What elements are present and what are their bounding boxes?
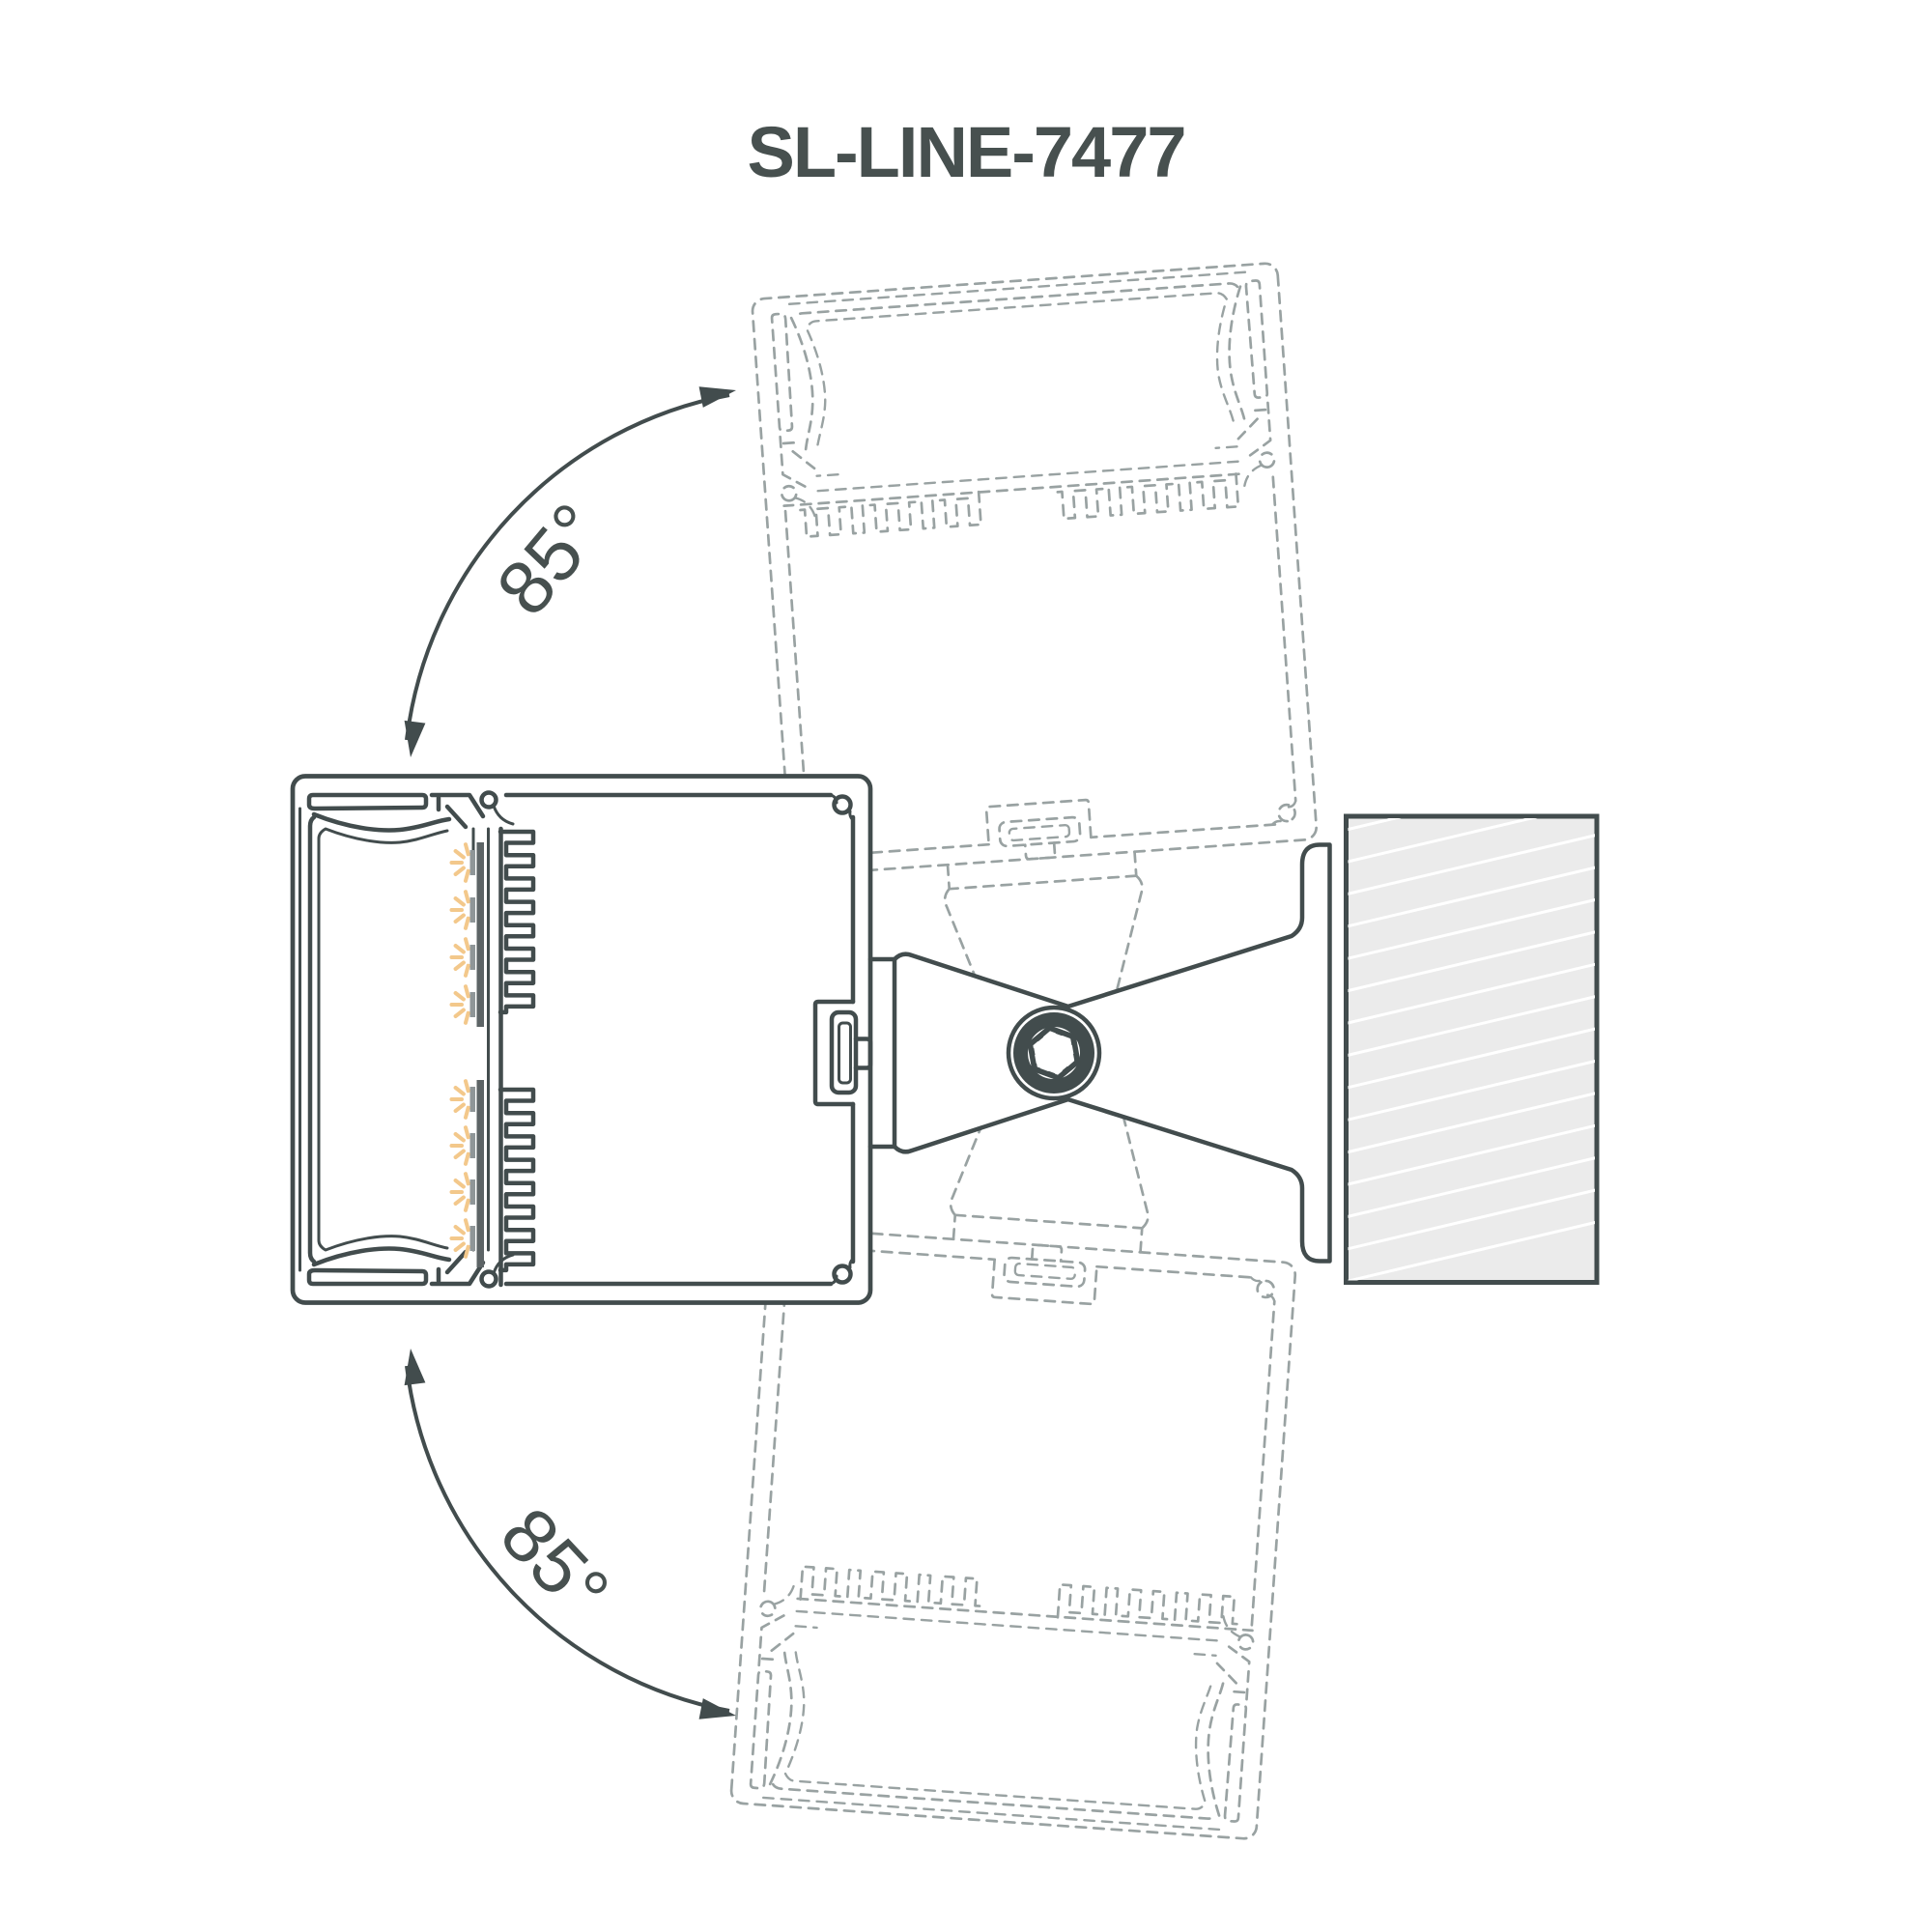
svg-text:85°: 85°: [485, 1491, 627, 1634]
svg-text:85°: 85°: [479, 487, 619, 631]
